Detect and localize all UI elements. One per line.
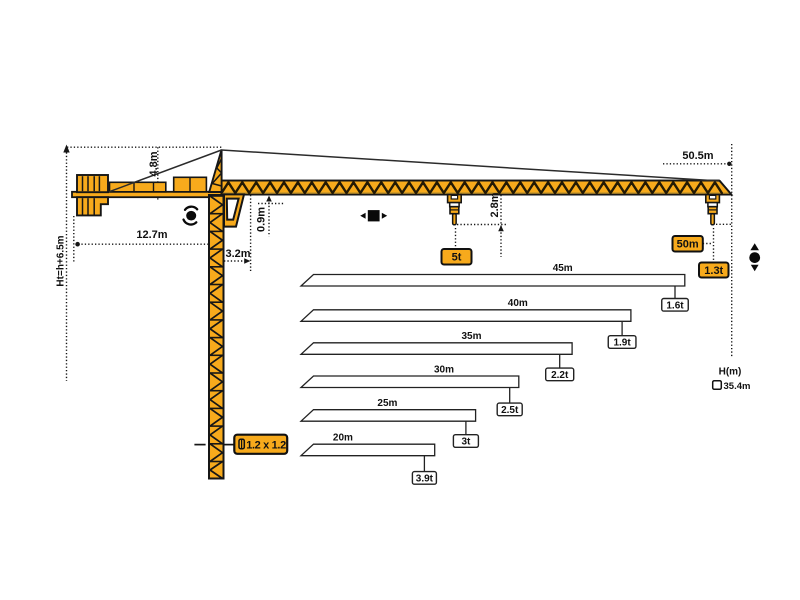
svg-text:4.8m: 4.8m	[148, 151, 160, 176]
svg-text:35m: 35m	[461, 331, 481, 342]
svg-text:3.2m: 3.2m	[225, 248, 250, 260]
svg-text:20m: 20m	[333, 433, 353, 444]
svg-text:25m: 25m	[377, 398, 397, 409]
svg-text:50m: 50m	[677, 239, 699, 251]
svg-text:0.9m: 0.9m	[256, 207, 268, 232]
svg-text:3.9t: 3.9t	[416, 474, 434, 485]
svg-text:40m: 40m	[508, 298, 528, 309]
svg-text:3t: 3t	[461, 437, 471, 448]
svg-text:45m: 45m	[553, 263, 573, 274]
svg-text:30m: 30m	[434, 364, 454, 375]
svg-text:1.3t: 1.3t	[704, 265, 723, 277]
svg-text:H(m): H(m)	[719, 367, 742, 378]
svg-text:Ht=h+6.5m: Ht=h+6.5m	[56, 235, 67, 286]
svg-text:2.2t: 2.2t	[551, 370, 569, 381]
svg-text:1.6t: 1.6t	[666, 300, 684, 311]
svg-text:50.5m: 50.5m	[682, 150, 713, 162]
svg-text:5t: 5t	[452, 252, 462, 264]
svg-text:12.7m: 12.7m	[136, 229, 167, 241]
svg-text:1.2 x 1.2: 1.2 x 1.2	[246, 440, 286, 452]
svg-text:2.5t: 2.5t	[501, 405, 519, 416]
svg-text:2.8m: 2.8m	[489, 192, 501, 217]
svg-text:1.9t: 1.9t	[613, 338, 631, 349]
svg-text:35.4m: 35.4m	[724, 381, 751, 392]
